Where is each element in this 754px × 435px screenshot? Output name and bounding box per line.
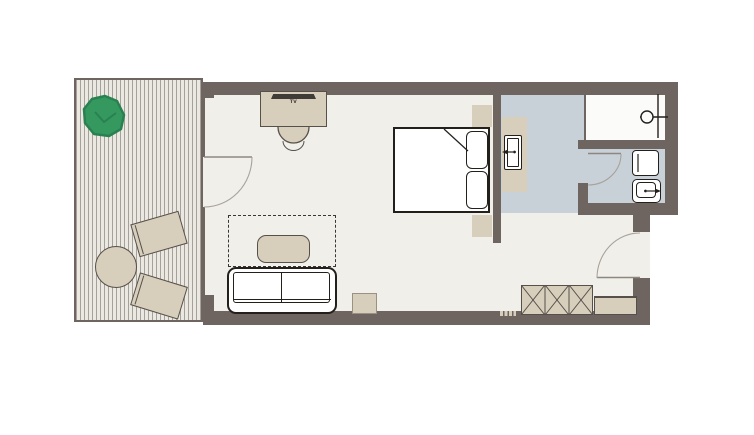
- terrace-window-line-top: [203, 98, 205, 157]
- tv-label: TV: [271, 100, 316, 105]
- terrace-window-line-bottom: [203, 207, 205, 295]
- coffee-table: [257, 235, 310, 263]
- wall-shower-divider: [578, 140, 665, 149]
- wall-wc-left-stub: [578, 183, 588, 203]
- floor-vent: [500, 311, 516, 316]
- wc-toilet: [632, 179, 661, 203]
- nightstand-bottom: [472, 215, 492, 237]
- wall-right: [665, 82, 678, 215]
- pillow-1: [466, 131, 488, 169]
- pillow-2: [466, 171, 488, 209]
- wall-entry-stub-top: [633, 215, 650, 232]
- side-table: [352, 293, 377, 314]
- sofa: [227, 267, 337, 314]
- wardrobe: [521, 285, 593, 315]
- floor-plan: TV: [0, 0, 754, 435]
- vanity-sink: [504, 135, 522, 170]
- wall-bed-divider: [493, 95, 501, 243]
- wall-bathroom-bottom: [578, 203, 678, 215]
- shower-floor: [584, 95, 665, 140]
- shower-glass-screen: [584, 95, 586, 140]
- wall-left-stub-top: [202, 82, 214, 98]
- wc-washbasin: [632, 150, 659, 176]
- nightstand-top: [472, 105, 492, 127]
- wall-left-stub-bottom: [202, 295, 214, 311]
- vanity-sink-basin: [507, 138, 519, 167]
- wc-toilet-bowl: [636, 182, 656, 198]
- tv: [271, 94, 316, 99]
- sofa-seat-divider: [281, 272, 282, 303]
- terrace-round-table: [95, 246, 137, 288]
- luggage-bench: [594, 296, 637, 315]
